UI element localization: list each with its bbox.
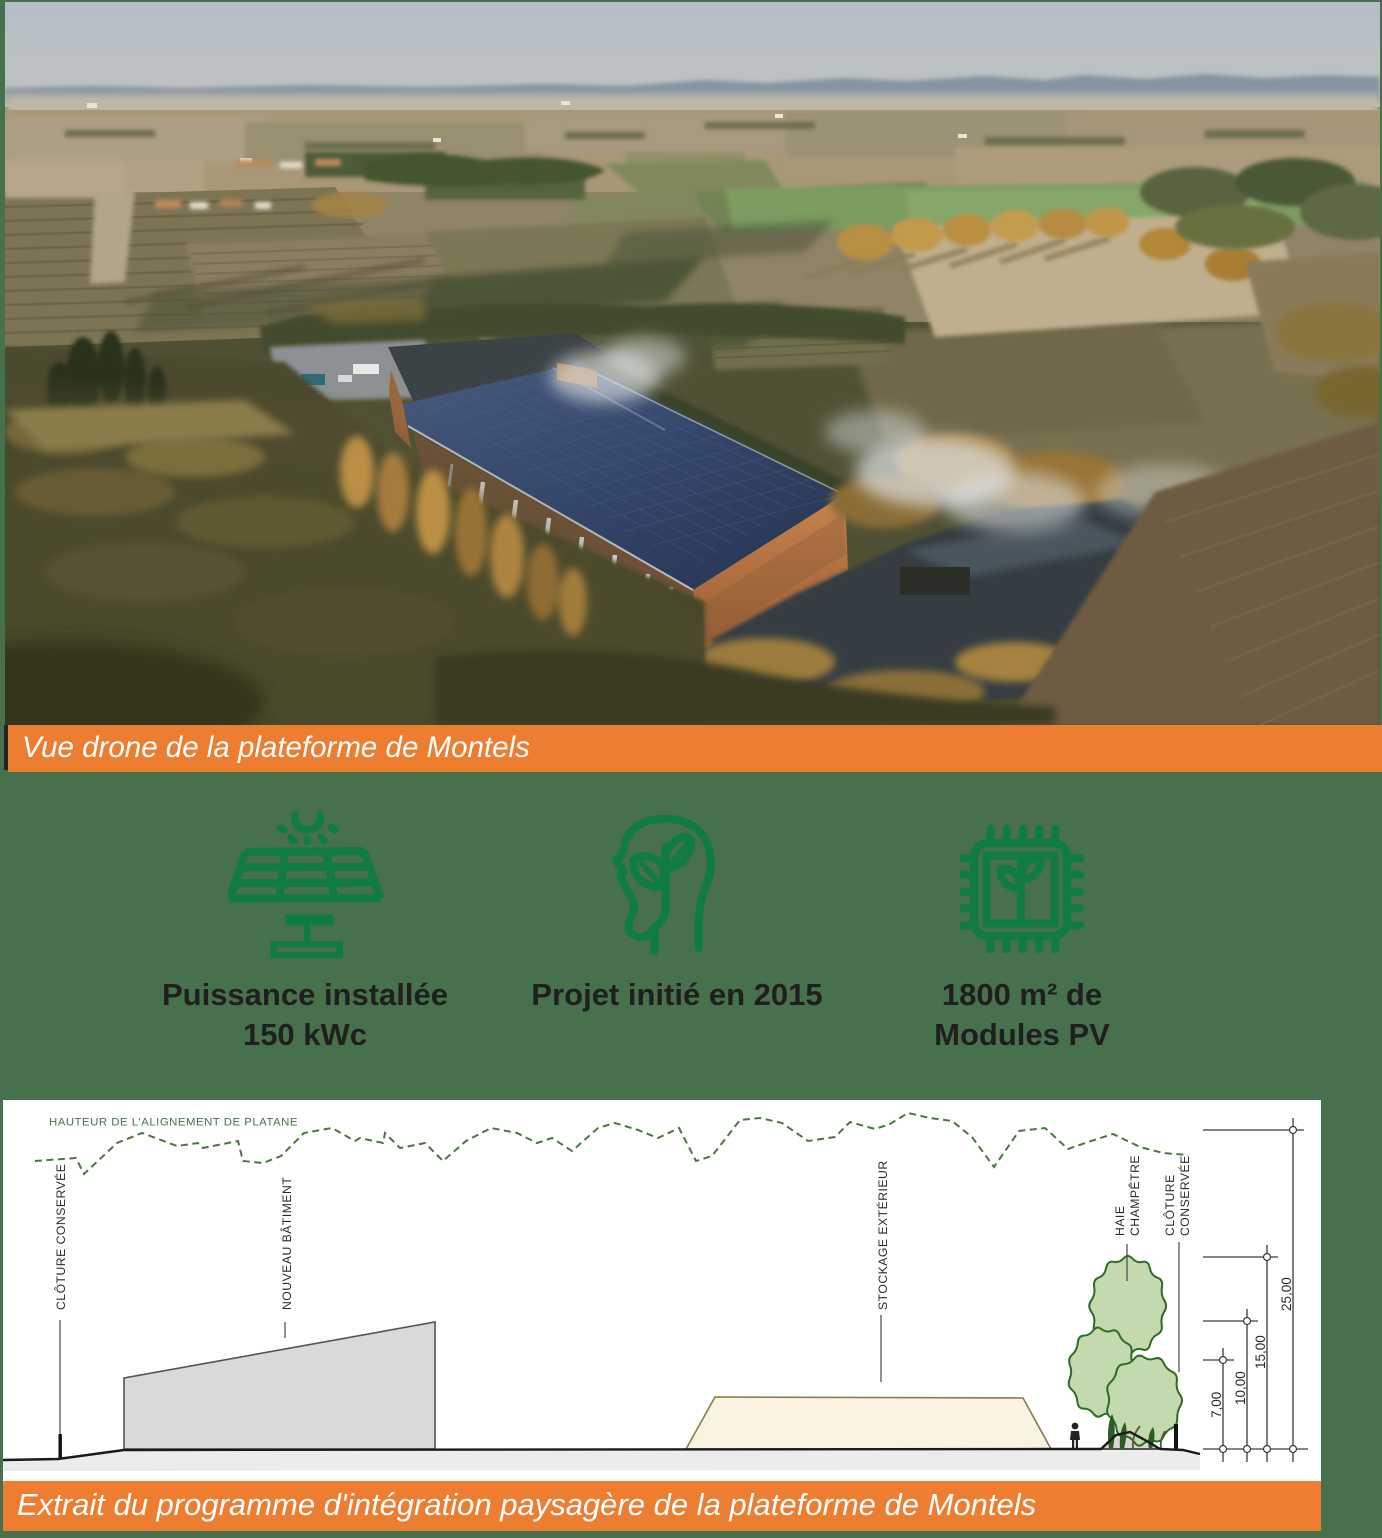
svg-text:CONSERVÉE: CONSERVÉE: [1177, 1155, 1192, 1236]
svg-text:7,00: 7,00: [1209, 1392, 1224, 1418]
svg-text:CHAMPÊTRE: CHAMPÊTRE: [1127, 1155, 1142, 1236]
svg-text:NOUVEAU BÂTIMENT: NOUVEAU BÂTIMENT: [279, 1177, 294, 1310]
svg-text:15,00: 15,00: [1253, 1335, 1268, 1369]
svg-text:STOCKAGE EXTÉRIEUR: STOCKAGE EXTÉRIEUR: [875, 1160, 890, 1310]
svg-text:CLÔTURE: CLÔTURE: [1162, 1174, 1177, 1236]
svg-text:25,00: 25,00: [1279, 1277, 1294, 1311]
svg-text:HAUTEUR DE L'ALIGNEMENT DE PLA: HAUTEUR DE L'ALIGNEMENT DE PLATANE: [49, 1117, 298, 1129]
svg-text:CLÔTURE CONSERVÉE: CLÔTURE CONSERVÉE: [53, 1164, 68, 1310]
svg-text:10,00: 10,00: [1233, 1371, 1248, 1405]
svg-text:HAIE: HAIE: [1113, 1206, 1127, 1236]
